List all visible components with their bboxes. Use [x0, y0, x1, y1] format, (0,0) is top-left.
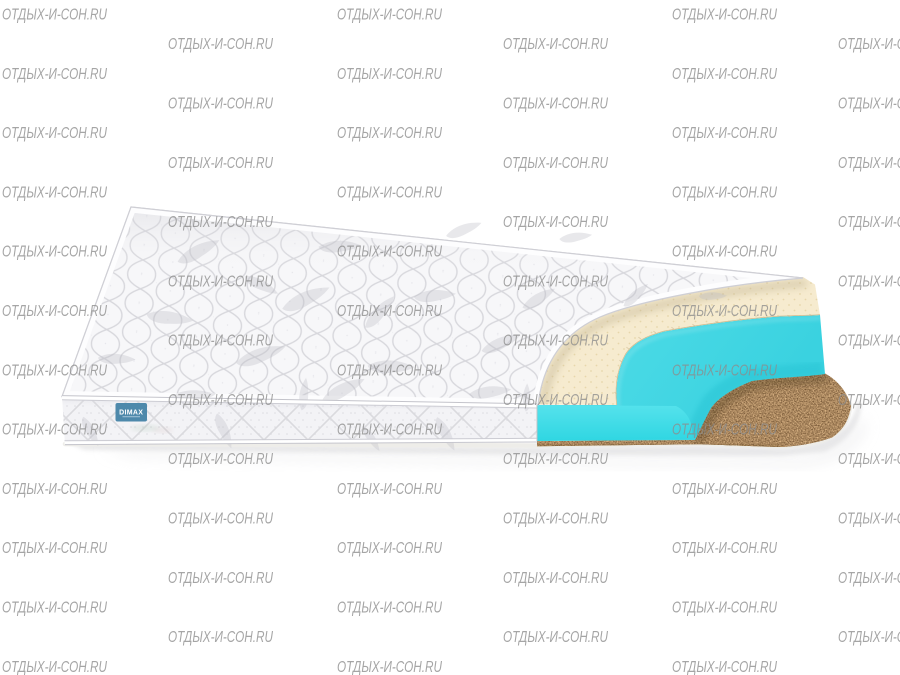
svg-text:ОТДЫХ-И-СОН.RU: ОТДЫХ-И-СОН.RU: [503, 95, 608, 112]
svg-text:ОТДЫХ-И-СОН.RU: ОТДЫХ-И-СОН.RU: [672, 303, 777, 320]
svg-text:ОТДЫХ-И-СОН.RU: ОТДЫХ-И-СОН.RU: [337, 362, 442, 379]
svg-text:ОТДЫХ-И-СОН.RU: ОТДЫХ-И-СОН.RU: [2, 422, 107, 439]
svg-text:ОТДЫХ-И-СОН.RU: ОТДЫХ-И-СОН.RU: [337, 659, 442, 675]
svg-text:ОТДЫХ-И-СОН.RU: ОТДЫХ-И-СОН.RU: [2, 600, 107, 617]
svg-text:ОТДЫХ-И-СОН.RU: ОТДЫХ-И-СОН.RU: [168, 273, 273, 290]
svg-text:ОТДЫХ-И-СОН.RU: ОТДЫХ-И-СОН.RU: [838, 36, 900, 53]
svg-text:ОТДЫХ-И-СОН.RU: ОТДЫХ-И-СОН.RU: [503, 392, 608, 409]
svg-text:ОТДЫХ-И-СОН.RU: ОТДЫХ-И-СОН.RU: [838, 570, 900, 587]
svg-text:ОТДЫХ-И-СОН.RU: ОТДЫХ-И-СОН.RU: [168, 511, 273, 528]
svg-text:ОТДЫХ-И-СОН.RU: ОТДЫХ-И-СОН.RU: [168, 214, 273, 231]
svg-text:ОТДЫХ-И-СОН.RU: ОТДЫХ-И-СОН.RU: [672, 659, 777, 675]
svg-text:ОТДЫХ-И-СОН.RU: ОТДЫХ-И-СОН.RU: [838, 95, 900, 112]
svg-text:DIMAX: DIMAX: [119, 410, 143, 417]
svg-text:ОТДЫХ-И-СОН.RU: ОТДЫХ-И-СОН.RU: [838, 511, 900, 528]
svg-text:ОТДЫХ-И-СОН.RU: ОТДЫХ-И-СОН.RU: [838, 214, 900, 231]
svg-text:ОТДЫХ-И-СОН.RU: ОТДЫХ-И-СОН.RU: [168, 36, 273, 53]
svg-text:ОТДЫХ-И-СОН.RU: ОТДЫХ-И-СОН.RU: [168, 95, 273, 112]
svg-text:ОТДЫХ-И-СОН.RU: ОТДЫХ-И-СОН.RU: [838, 451, 900, 468]
svg-text:ОТДЫХ-И-СОН.RU: ОТДЫХ-И-СОН.RU: [672, 184, 777, 201]
svg-text:ОТДЫХ-И-СОН.RU: ОТДЫХ-И-СОН.RU: [838, 155, 900, 172]
svg-text:ОТДЫХ-И-СОН.RU: ОТДЫХ-И-СОН.RU: [168, 333, 273, 350]
svg-text:ОТДЫХ-И-СОН.RU: ОТДЫХ-И-СОН.RU: [503, 570, 608, 587]
svg-text:ОТДЫХ-И-СОН.RU: ОТДЫХ-И-СОН.RU: [337, 184, 442, 201]
svg-text:ОТДЫХ-И-СОН.RU: ОТДЫХ-И-СОН.RU: [672, 66, 777, 83]
svg-text:ОТДЫХ-И-СОН.RU: ОТДЫХ-И-СОН.RU: [503, 155, 608, 172]
svg-text:ОТДЫХ-И-СОН.RU: ОТДЫХ-И-СОН.RU: [168, 451, 273, 468]
svg-text:ОТДЫХ-И-СОН.RU: ОТДЫХ-И-СОН.RU: [337, 7, 442, 24]
svg-text:ОТДЫХ-И-СОН.RU: ОТДЫХ-И-СОН.RU: [337, 540, 442, 557]
svg-text:ОТДЫХ-И-СОН.RU: ОТДЫХ-И-СОН.RU: [168, 155, 273, 172]
svg-text:ОТДЫХ-И-СОН.RU: ОТДЫХ-И-СОН.RU: [503, 273, 608, 290]
svg-text:ОТДЫХ-И-СОН.RU: ОТДЫХ-И-СОН.RU: [672, 244, 777, 261]
svg-text:ОТДЫХ-И-СОН.RU: ОТДЫХ-И-СОН.RU: [503, 36, 608, 53]
svg-text:ОТДЫХ-И-СОН.RU: ОТДЫХ-И-СОН.RU: [672, 481, 777, 498]
svg-text:ОТДЫХ-И-СОН.RU: ОТДЫХ-И-СОН.RU: [2, 125, 107, 142]
svg-text:ОТДЫХ-И-СОН.RU: ОТДЫХ-И-СОН.RU: [337, 125, 442, 142]
svg-text:ОТДЫХ-И-СОН.RU: ОТДЫХ-И-СОН.RU: [672, 125, 777, 142]
svg-text:ОТДЫХ-И-СОН.RU: ОТДЫХ-И-СОН.RU: [168, 392, 273, 409]
svg-text:ОТДЫХ-И-СОН.RU: ОТДЫХ-И-СОН.RU: [838, 333, 900, 350]
svg-text:ОТДЫХ-И-СОН.RU: ОТДЫХ-И-СОН.RU: [503, 629, 608, 646]
svg-text:ОТДЫХ-И-СОН.RU: ОТДЫХ-И-СОН.RU: [2, 244, 107, 261]
svg-text:ОТДЫХ-И-СОН.RU: ОТДЫХ-И-СОН.RU: [337, 244, 442, 261]
svg-text:ОТДЫХ-И-СОН.RU: ОТДЫХ-И-СОН.RU: [503, 333, 608, 350]
svg-text:ОТДЫХ-И-СОН.RU: ОТДЫХ-И-СОН.RU: [168, 629, 273, 646]
svg-text:ОТДЫХ-И-СОН.RU: ОТДЫХ-И-СОН.RU: [672, 422, 777, 439]
svg-text:ОТДЫХ-И-СОН.RU: ОТДЫХ-И-СОН.RU: [2, 66, 107, 83]
svg-text:ОТДЫХ-И-СОН.RU: ОТДЫХ-И-СОН.RU: [337, 481, 442, 498]
svg-text:ОТДЫХ-И-СОН.RU: ОТДЫХ-И-СОН.RU: [838, 392, 900, 409]
svg-text:ОТДЫХ-И-СОН.RU: ОТДЫХ-И-СОН.RU: [2, 540, 107, 557]
svg-text:ОТДЫХ-И-СОН.RU: ОТДЫХ-И-СОН.RU: [672, 362, 777, 379]
svg-text:ОТДЫХ-И-СОН.RU: ОТДЫХ-И-СОН.RU: [503, 511, 608, 528]
svg-text:ОТДЫХ-И-СОН.RU: ОТДЫХ-И-СОН.RU: [838, 629, 900, 646]
svg-text:ОТДЫХ-И-СОН.RU: ОТДЫХ-И-СОН.RU: [337, 600, 442, 617]
svg-text:ОТДЫХ-И-СОН.RU: ОТДЫХ-И-СОН.RU: [337, 303, 442, 320]
svg-text:ОТДЫХ-И-СОН.RU: ОТДЫХ-И-СОН.RU: [2, 659, 107, 675]
svg-text:ОТДЫХ-И-СОН.RU: ОТДЫХ-И-СОН.RU: [2, 184, 107, 201]
svg-text:ОТДЫХ-И-СОН.RU: ОТДЫХ-И-СОН.RU: [337, 66, 442, 83]
svg-text:ОТДЫХ-И-СОН.RU: ОТДЫХ-И-СОН.RU: [2, 7, 107, 24]
svg-text:ОТДЫХ-И-СОН.RU: ОТДЫХ-И-СОН.RU: [337, 422, 442, 439]
svg-text:ОТДЫХ-И-СОН.RU: ОТДЫХ-И-СОН.RU: [672, 540, 777, 557]
svg-text:ОТДЫХ-И-СОН.RU: ОТДЫХ-И-СОН.RU: [503, 451, 608, 468]
svg-text:ОТДЫХ-И-СОН.RU: ОТДЫХ-И-СОН.RU: [672, 7, 777, 24]
svg-text:ОТДЫХ-И-СОН.RU: ОТДЫХ-И-СОН.RU: [672, 600, 777, 617]
svg-text:ОТДЫХ-И-СОН.RU: ОТДЫХ-И-СОН.RU: [2, 481, 107, 498]
svg-text:ОТДЫХ-И-СОН.RU: ОТДЫХ-И-СОН.RU: [168, 570, 273, 587]
svg-text:ОТДЫХ-И-СОН.RU: ОТДЫХ-И-СОН.RU: [838, 273, 900, 290]
svg-text:ОТДЫХ-И-СОН.RU: ОТДЫХ-И-СОН.RU: [503, 214, 608, 231]
svg-text:ОТДЫХ-И-СОН.RU: ОТДЫХ-И-СОН.RU: [2, 303, 107, 320]
svg-text:ОТДЫХ-И-СОН.RU: ОТДЫХ-И-СОН.RU: [2, 362, 107, 379]
